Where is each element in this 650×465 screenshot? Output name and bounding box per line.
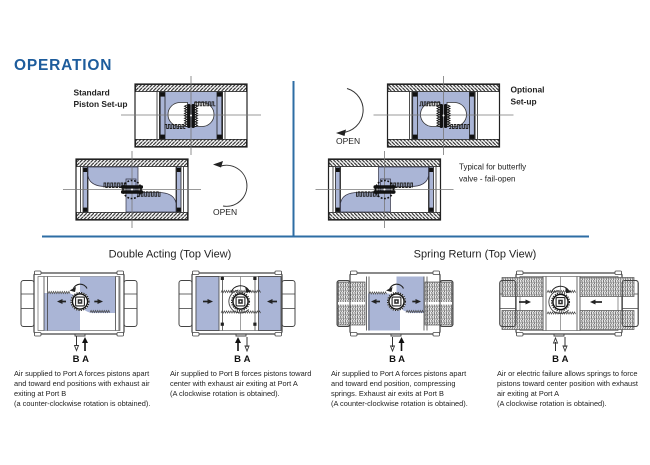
svg-text:Air supplied to Port A forces: Air supplied to Port A forces pistons ap… (14, 369, 149, 378)
svg-text:and toward end position, compr: and toward end position, compressing (331, 379, 455, 388)
svg-text:Double Acting (Top View): Double Acting (Top View) (109, 249, 232, 261)
svg-text:(a counter-clockwise rotation: (a counter-clockwise rotation is obtaine… (14, 399, 150, 408)
svg-text:OPEN: OPEN (213, 207, 237, 217)
svg-text:(A clockwise rotation is obtai: (A clockwise rotation is obtained). (170, 389, 280, 398)
svg-text:Spring Return (Top View): Spring Return (Top View) (414, 249, 537, 261)
svg-text:exiting at Port B: exiting at Port B (14, 389, 66, 398)
svg-text:OPERATION: OPERATION (14, 57, 112, 74)
svg-text:Air supplied to Port B forces: Air supplied to Port B forces pistons to… (170, 369, 311, 378)
svg-text:A: A (398, 354, 405, 365)
svg-text:air exiting at Port A: air exiting at Port A (497, 389, 559, 398)
svg-text:OPEN: OPEN (336, 136, 360, 146)
svg-text:(A clockwise rotation is obtai: (A clockwise rotation is obtained). (497, 399, 607, 408)
svg-text:Standard: Standard (74, 87, 110, 97)
svg-text:A: A (244, 354, 251, 365)
svg-text:and toward end positions with: and toward end positions with exhaust ai… (14, 379, 150, 388)
svg-text:center with exhaust air exitin: center with exhaust air exiting at Port … (170, 379, 298, 388)
svg-text:Piston Set-up: Piston Set-up (74, 99, 128, 109)
svg-text:(A counter-clockwise rotation: (A counter-clockwise rotation is obtaine… (331, 399, 468, 408)
svg-text:pistons toward center position: pistons toward center position with exha… (497, 379, 638, 388)
svg-text:springs. Exhaust air exits at: springs. Exhaust air exits at Port B (331, 389, 444, 398)
svg-text:Set-up: Set-up (511, 97, 537, 107)
svg-text:B: B (73, 354, 80, 365)
svg-text:Typical for butterfly: Typical for butterfly (459, 163, 526, 172)
svg-text:A: A (562, 354, 569, 365)
svg-text:B: B (389, 354, 396, 365)
svg-text:B: B (234, 354, 241, 365)
svg-text:valve - fail-open: valve - fail-open (459, 175, 515, 184)
svg-text:Air supplied to Port A forces: Air supplied to Port A forces pistons ap… (331, 369, 466, 378)
svg-text:B: B (552, 354, 559, 365)
svg-text:Air or electric failure allows: Air or electric failure allows springs t… (497, 369, 637, 378)
svg-text:A: A (82, 354, 89, 365)
svg-text:Optional: Optional (511, 85, 545, 95)
